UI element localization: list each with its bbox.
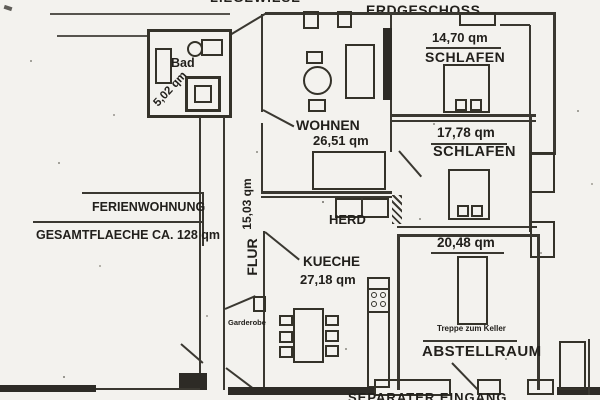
room-wohnen-area: 26,51 qm <box>313 134 369 147</box>
room-schlafen2-label: SCHLAFEN <box>433 145 516 160</box>
wall-hatch <box>392 195 402 224</box>
wall-segment <box>261 191 392 194</box>
room-schlafen1-area: 14,70 qm <box>432 31 488 44</box>
door-swing <box>264 231 299 260</box>
scan-smudge <box>4 5 13 11</box>
wall-pier <box>559 341 586 390</box>
pillow-icon <box>470 99 482 111</box>
treppe-label: Treppe zum Keller <box>437 325 506 333</box>
wall-segment <box>553 12 556 155</box>
wall-segment <box>57 35 149 37</box>
site-label: LIEGEWIESE <box>210 0 301 4</box>
wall-segment <box>397 226 537 228</box>
room-abstellraum-label: ABSTELLRAUM <box>422 344 542 359</box>
pillow-icon <box>457 205 469 217</box>
burner-icon <box>371 301 377 307</box>
wall-segment <box>537 234 540 390</box>
door-jamb <box>253 296 266 312</box>
door-swing <box>225 295 256 310</box>
wall-segment <box>0 385 96 392</box>
wall-pier <box>530 221 555 258</box>
burner-icon <box>380 292 386 298</box>
room-flur-label: FLUR <box>245 232 259 282</box>
eingang-label: SEPARATER EINGANG <box>348 391 508 400</box>
door-jamb <box>337 11 352 28</box>
wall-segment <box>96 388 200 390</box>
door-jamb <box>303 11 319 29</box>
burner-icon <box>380 301 386 307</box>
chair-icon <box>279 315 293 326</box>
chair-icon <box>308 99 326 112</box>
room-kueche-area: 27,18 qm <box>300 273 356 286</box>
herd-label: HERD <box>329 213 366 226</box>
wall-segment <box>390 12 392 28</box>
door-swing <box>263 109 295 127</box>
wall-segment <box>383 28 392 100</box>
wall-segment <box>261 123 263 194</box>
wall-segment <box>223 117 225 390</box>
stove-icon <box>367 288 390 313</box>
burner-icon <box>371 292 377 298</box>
window-niche <box>459 12 496 26</box>
total-area-label: GESAMTFLAECHE CA. 128 qm <box>36 229 220 242</box>
underline <box>423 340 517 342</box>
sink-icon <box>155 48 172 84</box>
sofa-icon <box>345 44 375 99</box>
bed-icon <box>448 169 490 220</box>
stairs-icon <box>457 256 488 325</box>
wall-segment <box>50 13 230 15</box>
floor-plan-scan: LIEGEWIESE ERDGESCHOSS Bad 5,02 qm WOHNE… <box>0 0 600 400</box>
wall-segment <box>390 114 536 117</box>
wall-segment <box>500 24 530 26</box>
door-swing <box>451 362 479 391</box>
shower-drain-icon <box>194 85 212 103</box>
wall-segment <box>397 234 400 390</box>
chair-icon <box>325 345 339 357</box>
chair-icon <box>279 331 293 343</box>
door-swing <box>398 150 422 177</box>
sideboard-icon <box>312 151 386 190</box>
scan-noise <box>30 60 32 62</box>
room-schlafen2-area: 17,78 qm <box>437 126 495 140</box>
wall-segment <box>199 117 201 378</box>
toilet-icon <box>201 39 223 56</box>
garderobe-label: Garderobe <box>228 319 266 327</box>
room-schlafen1-label: SCHLAFEN <box>425 50 505 64</box>
wall-segment <box>588 339 590 395</box>
wall-pier <box>530 152 555 193</box>
chair-icon <box>279 346 293 358</box>
toilet-bowl-icon <box>187 41 203 57</box>
wall-pier <box>527 379 554 395</box>
pillow-icon <box>455 99 467 111</box>
chair-icon <box>325 330 339 342</box>
wall-segment <box>390 120 536 122</box>
room-wohnen-label: WOHNEN <box>296 118 360 132</box>
round-table-icon <box>303 66 332 95</box>
dining-table-icon <box>293 308 324 363</box>
wall-segment <box>261 14 263 112</box>
pillow-icon <box>471 205 483 217</box>
chair-icon <box>325 315 339 326</box>
wall-segment <box>82 192 203 194</box>
underline <box>431 252 504 254</box>
wall-segment <box>390 100 392 152</box>
room-abstellraum-area: 20,48 qm <box>437 236 495 250</box>
room-kueche-label: KUECHE <box>303 255 360 269</box>
underline <box>33 221 203 223</box>
room-flur-area: 15,03 qm <box>241 169 253 239</box>
chair-icon <box>306 51 323 64</box>
apartment-name: FERIENWOHNUNG <box>92 201 205 214</box>
